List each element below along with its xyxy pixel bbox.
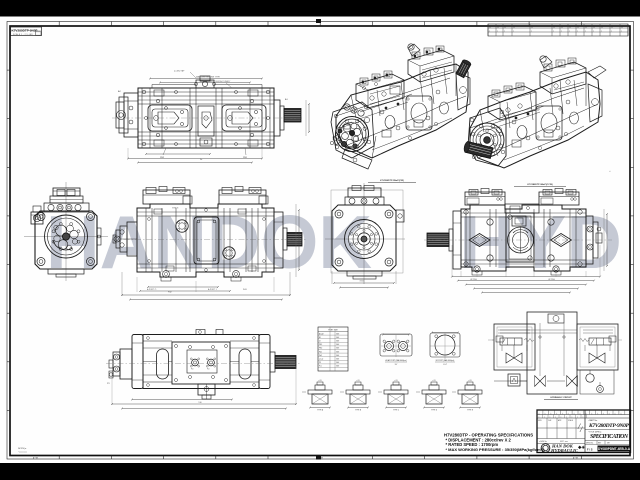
svg-text:NOTE) ▸: NOTE) ▸: [18, 447, 27, 450]
svg-text:x: x: [504, 30, 505, 32]
svg-text:xx: xx: [504, 26, 506, 28]
svg-text:SHT: SHT: [607, 443, 610, 445]
svg-text:xx: xx: [489, 26, 491, 28]
svg-text:x: x: [593, 30, 594, 32]
svg-text:3/4”: 3/4”: [395, 364, 398, 366]
svg-text:x: x: [611, 30, 612, 32]
svg-text:DY080PDMT-4EB-0-A: DY080PDMT-4EB-0-A: [598, 447, 631, 451]
svg-text:xx: xx: [593, 26, 595, 28]
svg-text:x: x: [531, 30, 532, 32]
svg-text:Pd: Pd: [191, 369, 193, 371]
svg-text:REV: REV: [598, 443, 601, 445]
svg-text:xx: xx: [577, 26, 579, 28]
svg-text:HYDRAULIC CIRCUIT: HYDRAULIC CIRCUIT: [550, 396, 572, 399]
svg-text:●—▸: ●—▸: [573, 457, 578, 460]
svg-text:B1: B1: [319, 337, 321, 339]
svg-text:∅165: ∅165: [359, 280, 365, 283]
svg-text:HYDRAULIC: HYDRAULIC: [550, 448, 579, 453]
svg-text:PB1: PB1: [319, 344, 322, 346]
svg-text:x: x: [569, 30, 570, 32]
svg-text:x: x: [497, 30, 498, 32]
svg-text:* MAX WORKING PRESSURE : 35/35: * MAX WORKING PRESSURE : 35/350(MPa(kgf/…: [446, 447, 546, 452]
svg-text:x: x: [577, 30, 578, 32]
svg-text:xx: xx: [585, 26, 587, 28]
svg-text:x: x: [585, 30, 586, 32]
svg-text:TYPE E: TYPE E: [467, 410, 474, 412]
svg-text:xx: xx: [513, 26, 515, 28]
svg-text:xx: xx: [601, 26, 603, 28]
svg-text:●—▸: ●—▸: [318, 457, 323, 460]
svg-text:A1,A2 PORT (SAE 6000psi): A1,A2 PORT (SAE 6000psi): [385, 359, 406, 362]
svg-text:xx: xx: [621, 26, 623, 28]
svg-text:P3: P3: [319, 362, 321, 364]
svg-text:1-1/4”: 1-1/4”: [443, 364, 448, 366]
svg-text:SPECIFICATION: SPECIFICATION: [590, 434, 629, 440]
svg-text:Pd: Pd: [207, 369, 209, 371]
svg-text:xx: xx: [531, 26, 533, 28]
svg-text:x: x: [561, 30, 562, 32]
svg-text:xx: xx: [611, 26, 613, 28]
svg-text:a1,a2: a1,a2: [319, 359, 323, 361]
svg-text:x: x: [601, 30, 602, 32]
svg-text:x: x: [513, 30, 514, 32]
svg-text:TYPE A: TYPE A: [317, 409, 324, 412]
svg-text:A1,A2: A1,A2: [319, 332, 324, 335]
svg-text:TYPE D: TYPE D: [431, 410, 438, 412]
svg-text:◆◈: ◆◈: [578, 445, 585, 450]
svg-text:K7V280DTP-9N●P(CCW): K7V280DTP-9N●P(CCW): [527, 183, 553, 186]
svg-text:A-PORT ∅: A-PORT ∅: [147, 288, 157, 291]
svg-text:x: x: [553, 30, 554, 32]
svg-text:Pd2: Pd2: [319, 355, 322, 357]
svg-text:xx: xx: [561, 26, 563, 28]
svg-text:Psv: Psv: [319, 366, 322, 368]
svg-text:TYPE C: TYPE C: [393, 410, 400, 412]
svg-text:SCALE 1 : 2.5 (A1): SCALE 1 : 2.5 (A1): [13, 33, 33, 36]
svg-text:PORT SIZE: PORT SIZE: [328, 330, 338, 332]
svg-text:PB2: PB2: [319, 348, 322, 350]
svg-text:xx: xx: [497, 26, 499, 28]
svg-text:F / S: F / S: [587, 447, 593, 451]
svg-text:▪ PART No.: ▪ PART No.: [588, 419, 598, 422]
svg-text:●—▸: ●—▸: [33, 457, 38, 460]
svg-text:HANDOK: HANDOK: [46, 200, 372, 284]
svg-text:K7V280DTP-9N●P(CW): K7V280DTP-9N●P(CW): [380, 179, 404, 182]
svg-text:DRWG No.: DRWG No.: [586, 443, 594, 445]
svg-text:VIEW B: VIEW B: [172, 208, 179, 210]
svg-text:xx: xx: [569, 26, 571, 28]
svg-text:B1 PORT (SAE 6000psi): B1 PORT (SAE 6000psi): [436, 359, 455, 362]
svg-text:xx: xx: [553, 26, 555, 28]
svg-text:x: x: [621, 30, 622, 32]
svg-text:x: x: [489, 30, 490, 32]
svg-text:• xxxx xxxx: • xxxx xxxx: [18, 452, 27, 454]
svg-text:Pd1: Pd1: [319, 351, 322, 353]
svg-text:K7V280DTP-9N0P: K7V280DTP-9N0P: [588, 423, 630, 429]
svg-text:▸ 2-M12 TAP: ▸ 2-M12 TAP: [174, 70, 185, 73]
svg-text:TYPE B: TYPE B: [355, 410, 362, 412]
svg-text:A-PORT 1: A-PORT 1: [208, 288, 217, 291]
